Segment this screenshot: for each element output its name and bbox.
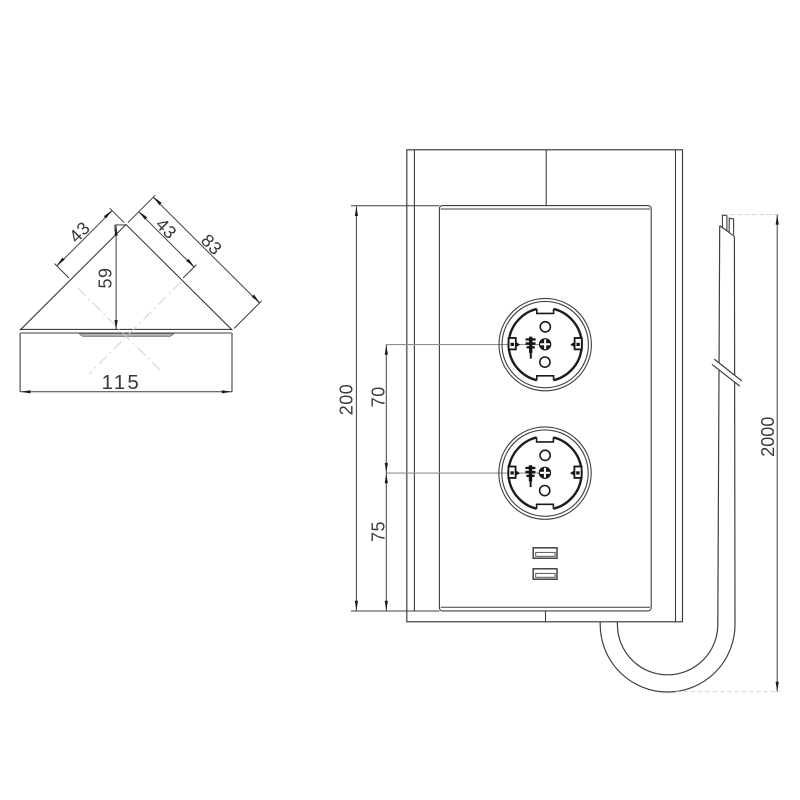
svg-text:43: 43: [65, 218, 94, 247]
svg-text:75: 75: [368, 521, 388, 542]
svg-text:115: 115: [102, 371, 141, 394]
svg-text:43: 43: [152, 214, 181, 243]
svg-text:70: 70: [368, 386, 388, 407]
svg-text:59: 59: [96, 267, 116, 288]
svg-text:83: 83: [197, 230, 226, 259]
svg-text:2000: 2000: [758, 417, 778, 457]
svg-text:200: 200: [336, 384, 356, 416]
